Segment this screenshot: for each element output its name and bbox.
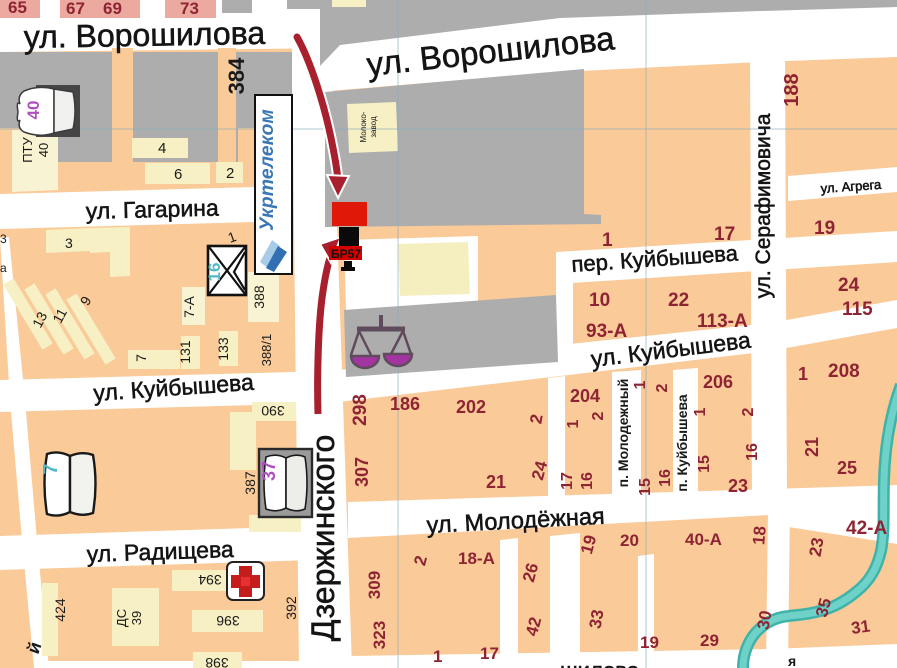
svg-text:37: 37 [259,461,279,481]
svg-text:п. Куйбышева: п. Куйбышева [674,394,690,492]
svg-text:424: 424 [52,598,68,622]
svg-text:202: 202 [456,397,486,417]
svg-text:113-А: 113-А [697,311,748,332]
svg-text:16: 16 [744,443,761,461]
svg-text:20: 20 [620,531,639,550]
svg-text:16: 16 [657,469,674,487]
svg-text:3: 3 [65,235,73,251]
svg-text:16: 16 [205,263,224,282]
svg-text:40: 40 [36,143,51,157]
svg-text:17: 17 [714,224,735,245]
svg-text:188: 188 [781,73,803,106]
svg-text:387: 387 [242,471,258,495]
svg-text:Укртелеком: Укртелеком [256,109,278,231]
svg-text:309: 309 [365,571,384,599]
svg-text:завод: завод [369,116,378,138]
svg-text:15: 15 [637,478,654,496]
svg-text:42-А: 42-А [846,518,887,539]
svg-text:1: 1 [632,380,649,389]
svg-text:73: 73 [180,0,199,18]
svg-text:390: 390 [261,403,285,419]
svg-text:39: 39 [129,611,144,625]
svg-text:25: 25 [837,458,857,478]
svg-text:186: 186 [390,394,420,414]
svg-text:а: а [0,261,7,275]
svg-text:40: 40 [24,101,43,120]
svg-text:1: 1 [602,230,613,251]
svg-text:16: 16 [579,472,596,490]
svg-text:65: 65 [8,0,27,17]
svg-text:10: 10 [589,290,610,311]
svg-text:21: 21 [486,472,506,492]
svg-text:398: 398 [205,655,229,668]
svg-text:69: 69 [103,0,122,18]
svg-text:7: 7 [133,354,149,362]
svg-text:4: 4 [158,140,166,157]
svg-text:24: 24 [838,275,860,296]
svg-text:ПТУ: ПТУ [20,136,35,162]
svg-text:298: 298 [350,394,371,426]
svg-text:33: 33 [586,608,608,630]
svg-text:2: 2 [654,383,671,392]
svg-text:22: 22 [668,290,689,311]
svg-text:шилово: шилово [560,658,639,668]
svg-text:2: 2 [226,165,234,182]
svg-text:ул. Гагарина: ул. Гагарина [85,195,219,224]
svg-text:23: 23 [806,536,828,558]
svg-text:17: 17 [559,472,576,490]
svg-text:307: 307 [352,457,372,487]
svg-text:208: 208 [828,361,860,382]
svg-text:15: 15 [696,455,713,473]
svg-text:3: 3 [0,232,7,246]
svg-text:29: 29 [700,631,719,650]
svg-text:31: 31 [850,617,871,638]
svg-text:2: 2 [590,411,607,420]
svg-text:67: 67 [66,0,85,18]
svg-text:392: 392 [283,596,299,620]
svg-text:19: 19 [814,218,835,239]
svg-text:Молоко-: Молоко- [359,111,368,142]
svg-text:23: 23 [728,476,748,496]
svg-text:388/1: 388/1 [259,334,274,367]
svg-text:7-А: 7-А [181,295,197,317]
svg-text:21: 21 [802,437,822,457]
svg-text:п. Молодежный: п. Молодежный [615,379,631,488]
svg-text:17: 17 [480,644,499,663]
svg-text:2: 2 [740,407,757,416]
svg-text:я: я [788,653,796,668]
svg-text:323: 323 [370,621,389,649]
svg-text:131: 131 [177,340,193,364]
svg-text:1: 1 [692,407,709,416]
svg-text:396: 396 [216,613,240,629]
svg-text:1: 1 [565,419,582,428]
svg-text:18: 18 [749,525,770,546]
svg-text:1: 1 [798,364,808,384]
svg-text:388: 388 [251,285,267,309]
svg-text:206: 206 [703,372,733,392]
svg-text:30: 30 [754,609,776,631]
svg-text:ДС: ДС [114,609,129,627]
svg-text:6: 6 [174,166,182,183]
svg-text:40-А: 40-А [685,530,722,549]
svg-text:ул. Ворошилова: ул. Ворошилова [23,15,265,55]
svg-text:204: 204 [570,386,600,406]
svg-text:18-А: 18-А [458,549,495,568]
svg-text:384: 384 [224,57,249,94]
svg-text:БР57: БР57 [331,247,361,261]
svg-text:ул. Серафимовича: ул. Серафимовича [752,113,775,298]
svg-text:19: 19 [640,633,659,652]
svg-text:1: 1 [433,647,442,666]
svg-text:115: 115 [842,299,873,320]
svg-text:7: 7 [40,463,62,474]
svg-text:394: 394 [198,572,222,588]
svg-text:93-А: 93-А [586,321,627,342]
svg-text:ул. Радищева: ул. Радищева [86,536,234,567]
svg-text:133: 133 [215,337,231,361]
